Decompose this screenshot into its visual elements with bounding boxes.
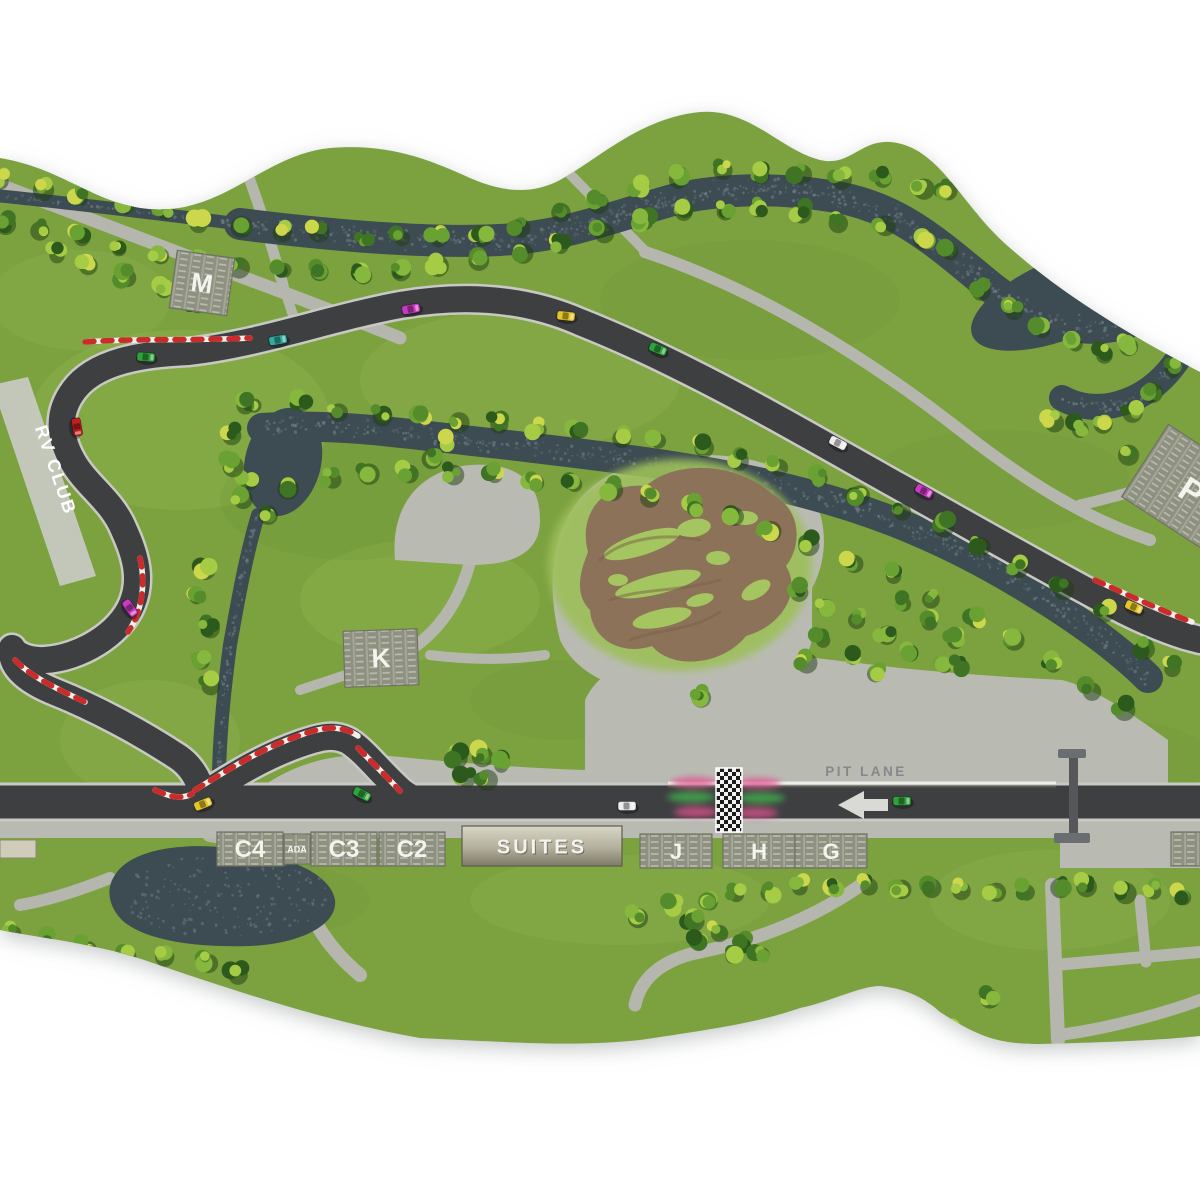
facility-map: PIT LANE RV CLUB M K bbox=[0, 0, 1200, 1200]
suites-building[interactable]: SUITES SUITES bbox=[462, 826, 622, 866]
pit-lane-label: PIT LANE bbox=[825, 764, 907, 779]
svg-text:M: M bbox=[189, 267, 215, 300]
race-car bbox=[617, 802, 639, 815]
parking-lot-c3[interactable]: C3 bbox=[311, 832, 377, 866]
dirt-track bbox=[548, 459, 812, 671]
parking-lot-m[interactable]: M bbox=[169, 250, 235, 316]
parking-lot-c4[interactable]: C4 bbox=[217, 832, 283, 866]
parking-lot-g[interactable]: G bbox=[795, 834, 867, 868]
parking-lot-c2[interactable]: C2 bbox=[379, 832, 445, 866]
svg-text:ADA: ADA bbox=[287, 845, 307, 855]
svg-text:K: K bbox=[371, 643, 391, 674]
svg-text:G: G bbox=[822, 839, 839, 864]
svg-text:J: J bbox=[670, 839, 682, 864]
svg-text:C3: C3 bbox=[329, 836, 360, 863]
parking-lot-ada[interactable]: ADA bbox=[284, 834, 310, 864]
svg-text:H: H bbox=[751, 839, 767, 864]
svg-text:C4: C4 bbox=[235, 836, 266, 863]
parking-lot-h[interactable]: H bbox=[723, 834, 795, 868]
svg-text:C2: C2 bbox=[397, 836, 428, 863]
parking-lot-partial-right[interactable] bbox=[1171, 832, 1200, 866]
left-edge-building bbox=[0, 840, 36, 858]
race-car bbox=[892, 797, 914, 810]
parking-lot-k[interactable]: K bbox=[343, 629, 419, 688]
parking-lot-j[interactable]: J bbox=[640, 834, 712, 868]
svg-text:SUITES: SUITES bbox=[497, 837, 587, 859]
